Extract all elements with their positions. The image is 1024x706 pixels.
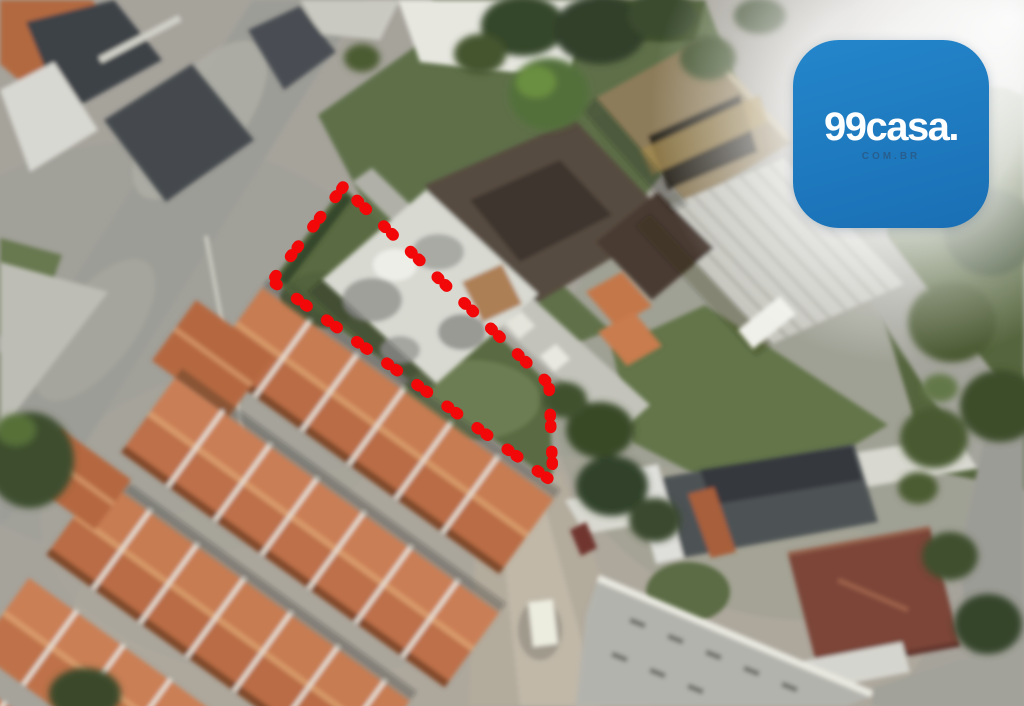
parked-car-white [528,599,558,647]
logo-badge: 99casa. COM.BR [793,40,989,228]
aerial-listing-image: 99casa. COM.BR [0,0,1024,706]
logo-subtitle: COM.BR [862,151,921,162]
logo-title: 99casa. [824,107,958,147]
